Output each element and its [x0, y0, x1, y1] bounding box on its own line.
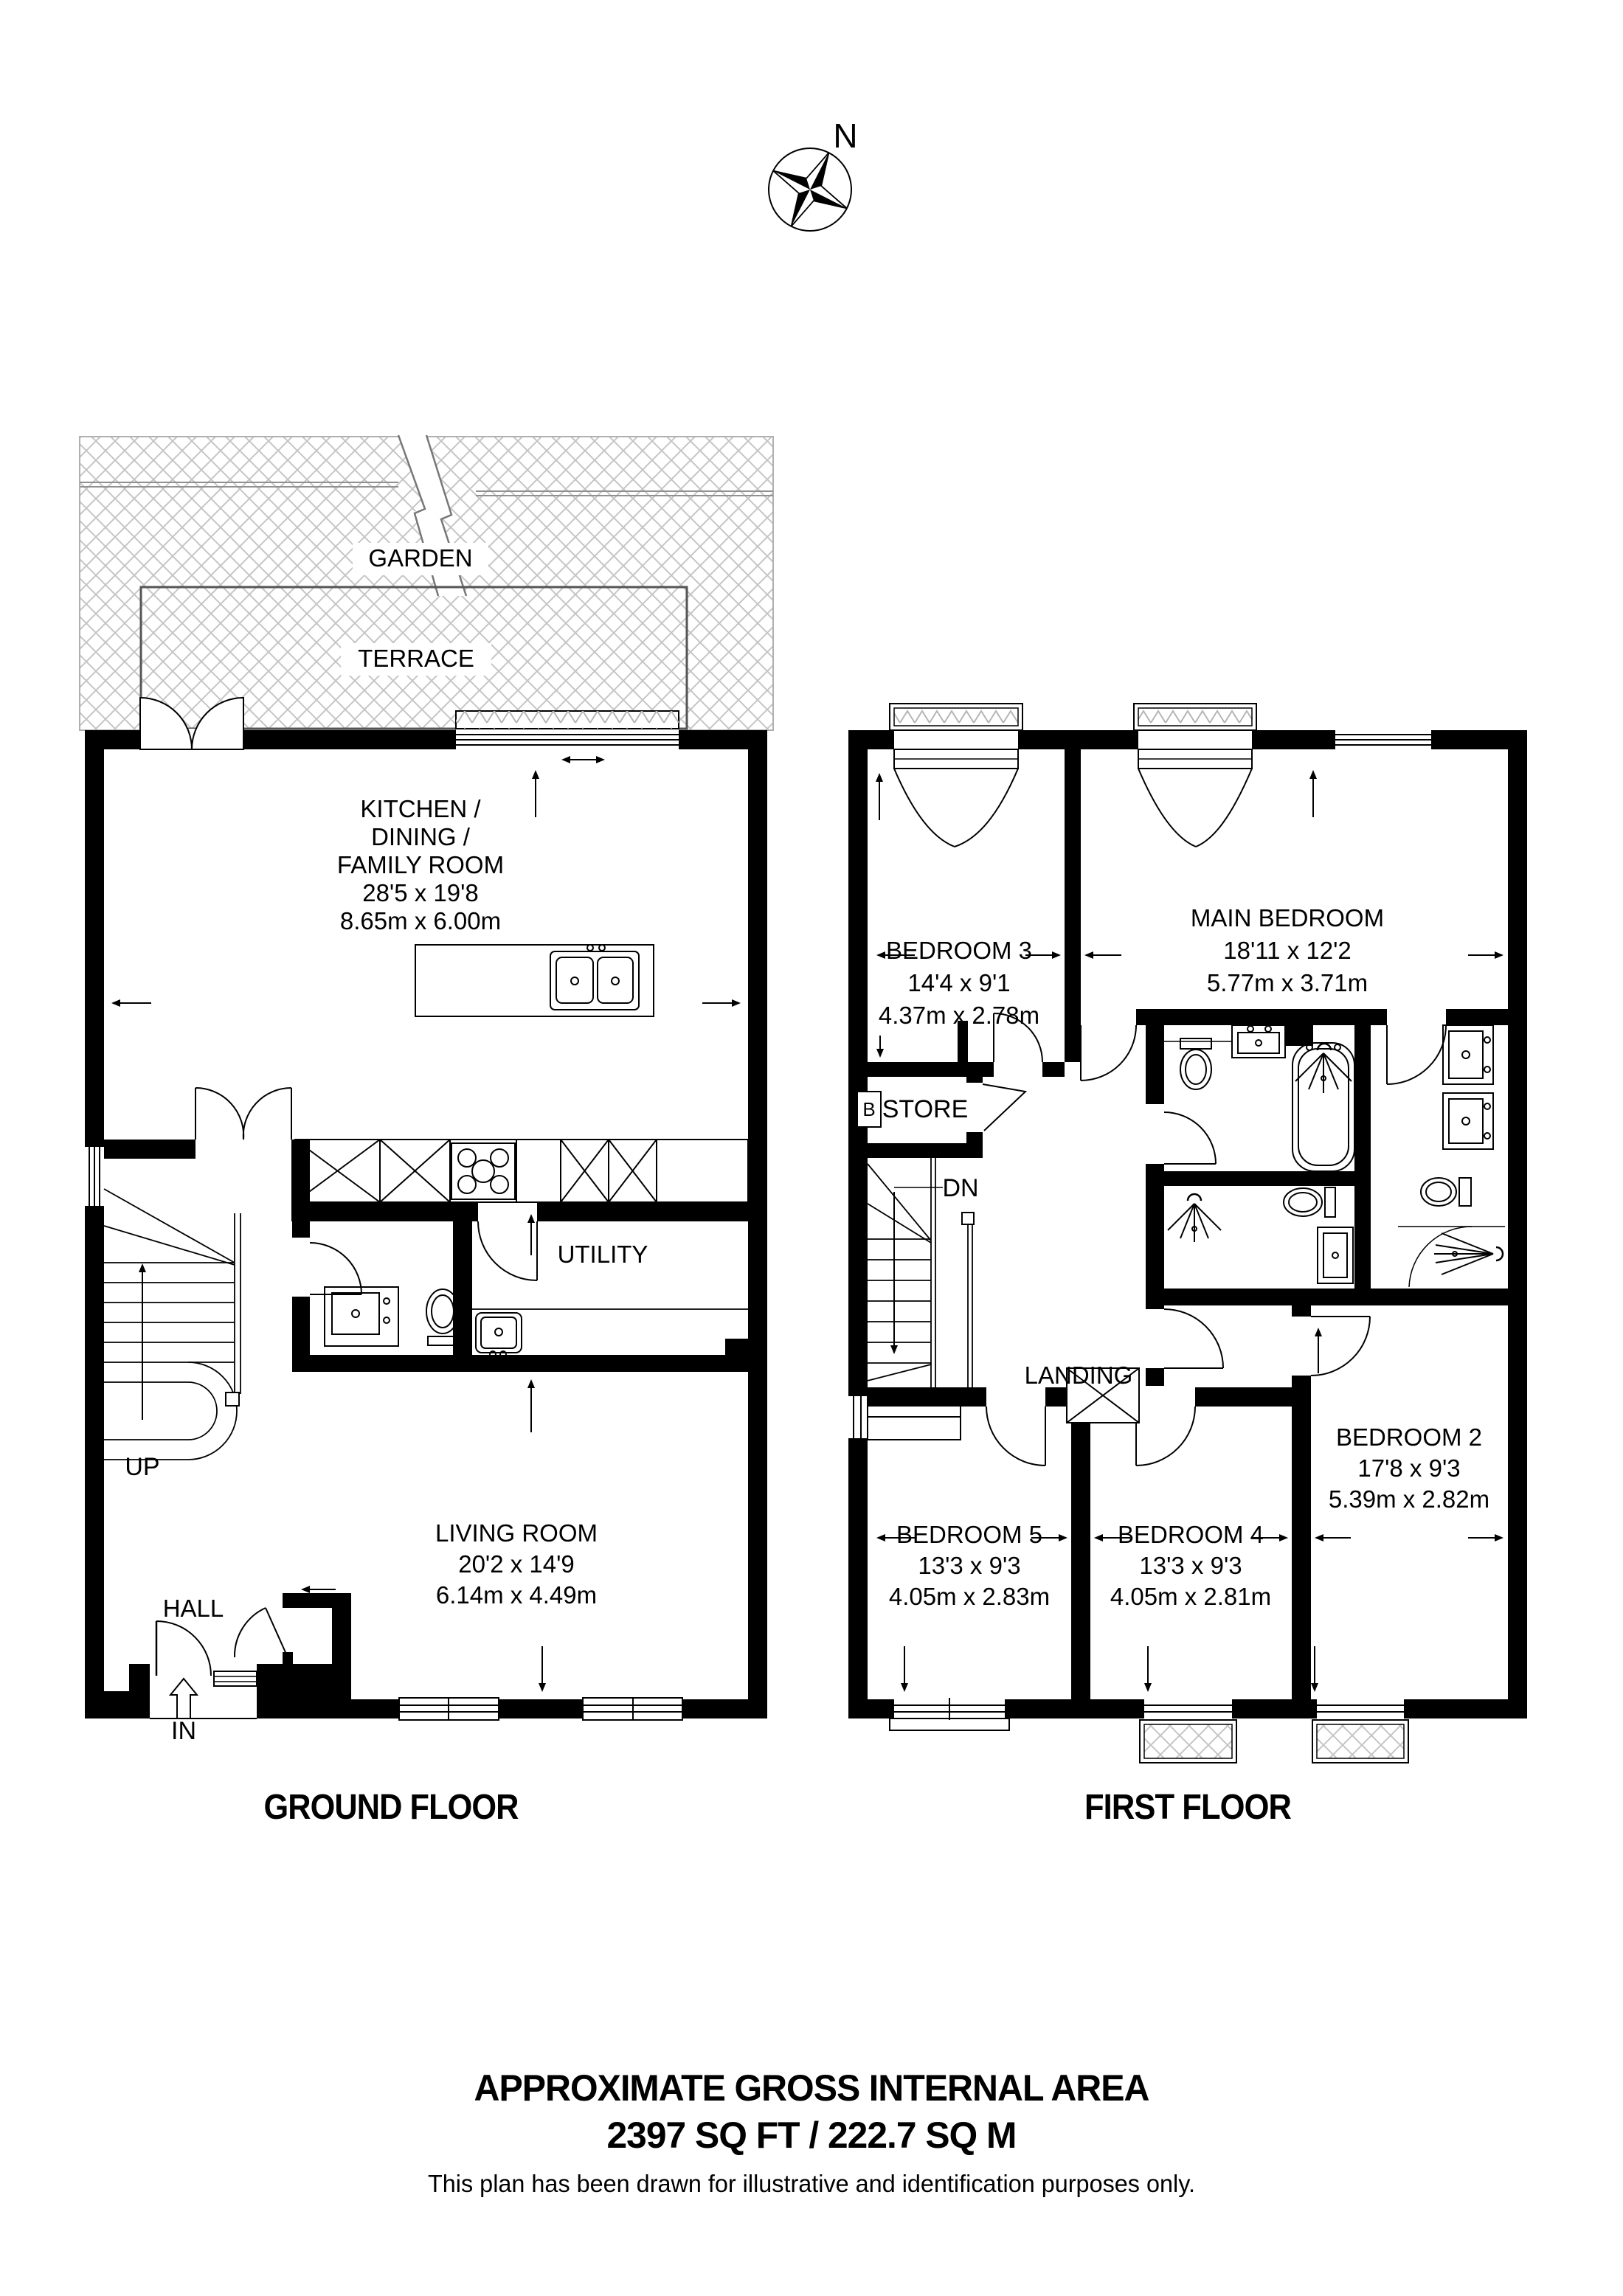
room-dimensions: 6.14m x 4.49m — [436, 1581, 597, 1609]
bedroom3-dormer-window — [890, 704, 1022, 847]
store-label: STORE — [882, 1095, 969, 1123]
kitchen-window — [456, 711, 679, 745]
ground-floor-plan: IN — [85, 698, 767, 1745]
room-dimensions: 4.37m x 2.78m — [879, 1002, 1039, 1029]
in-label: IN — [171, 1717, 196, 1745]
room-dimensions: 5.39m x 2.82m — [1329, 1485, 1489, 1513]
area-title: APPROXIMATE GROSS INTERNAL AREA — [474, 2067, 1149, 2109]
room-label: BEDROOM 3 — [886, 937, 1032, 964]
basin-icon — [1318, 1227, 1353, 1283]
room-label: LIVING ROOM — [435, 1519, 598, 1547]
kitchen-island — [415, 945, 654, 1016]
boiler-label: B — [862, 1098, 875, 1120]
room-dimensions: 20'2 x 14'9 — [458, 1550, 575, 1578]
dn-label: DN — [942, 1174, 978, 1202]
room-bedroom4: BEDROOM 4 13'3 x 9'3 4.05m x 2.81m — [1110, 1521, 1271, 1610]
vanity-basin-icon — [1443, 1025, 1493, 1084]
room-bedroom2: BEDROOM 2 17'8 x 9'3 5.39m x 2.82m — [1329, 1423, 1489, 1513]
room-dimensions: 5.77m x 3.71m — [1207, 969, 1368, 996]
room-dimensions: 13'3 x 9'3 — [1139, 1552, 1242, 1579]
room-hall-label: HALL — [163, 1595, 224, 1622]
room-dimensions: 14'4 x 9'1 — [907, 969, 1010, 996]
garden-area: GARDEN TERRACE — [80, 435, 773, 730]
room-bedroom3: BEDROOM 3 14'4 x 9'1 4.37m x 2.78m — [879, 937, 1039, 1029]
floorplan-page: N GARDEN TERRACE — [0, 0, 1623, 2296]
door-swing — [195, 1088, 291, 1140]
landing-label: LANDING — [1025, 1362, 1133, 1389]
room-dimensions: 28'5 x 19'8 — [362, 879, 479, 906]
room-label: MAIN BEDROOM — [1191, 904, 1384, 932]
room-dimensions: 8.65m x 6.00m — [340, 907, 501, 934]
boiler-icon: B — [857, 1092, 881, 1127]
room-label: FAMILY ROOM — [337, 851, 504, 878]
toilet-icon — [1421, 1178, 1471, 1206]
first-floor-plan: B STORE DN — [848, 704, 1527, 1763]
up-label: UP — [125, 1453, 159, 1481]
room-label: BEDROOM 4 — [1118, 1521, 1264, 1548]
room-dimensions: 4.05m x 2.83m — [889, 1583, 1050, 1610]
stairs-up — [104, 1189, 240, 1460]
ground-floor-title: GROUND FLOOR — [264, 1788, 519, 1827]
room-label: DINING / — [371, 823, 471, 850]
terrace-label: TERRACE — [358, 645, 474, 672]
room-kitchen: KITCHEN / DINING / FAMILY ROOM 28'5 x 19… — [337, 795, 504, 934]
door-swing — [478, 1221, 537, 1280]
disclaimer-text: This plan has been drawn for illustrativ… — [428, 2170, 1195, 2197]
utility-sink-icon — [472, 1309, 748, 1357]
bath-icon — [1292, 1043, 1354, 1171]
entrance-in-marker: IN — [170, 1679, 197, 1745]
kitchen-counter — [295, 1140, 748, 1202]
shower-icon — [1168, 1194, 1221, 1242]
compass-icon: N — [769, 117, 858, 231]
basin-icon — [1164, 1025, 1285, 1058]
room-bedroom5: BEDROOM 5 13'3 x 9'3 4.05m x 2.83m — [889, 1521, 1050, 1610]
main-bedroom-dormer-window — [1134, 704, 1256, 847]
first-floor-title: FIRST FLOOR — [1084, 1788, 1291, 1827]
room-label: KITCHEN / — [360, 795, 481, 822]
door-swing — [235, 1608, 288, 1657]
room-dimensions: 4.05m x 2.81m — [1110, 1583, 1271, 1610]
room-label: BEDROOM 2 — [1336, 1423, 1482, 1451]
basin-icon — [325, 1287, 398, 1346]
room-utility-label: UTILITY — [558, 1241, 648, 1268]
floorplan-drawing: N GARDEN TERRACE — [0, 0, 1623, 2296]
entrance-door — [150, 1621, 257, 1718]
area-value: 2397 SQ FT / 222.7 SQ M — [607, 2115, 1017, 2156]
ground-floor-walls — [85, 730, 767, 1718]
corner-shower-icon — [1398, 1227, 1505, 1287]
compass-north-label: N — [833, 117, 857, 155]
room-dimensions: 17'8 x 9'3 — [1357, 1454, 1460, 1482]
room-main-bedroom: MAIN BEDROOM 18'11 x 12'2 5.77m x 3.71m — [1191, 904, 1384, 996]
room-dimensions: 13'3 x 9'3 — [918, 1552, 1020, 1579]
room-dimensions: 18'11 x 12'2 — [1223, 937, 1351, 964]
vanity-basin-icon — [1443, 1093, 1493, 1149]
room-label: BEDROOM 5 — [896, 1521, 1042, 1548]
hob-icon — [451, 1143, 515, 1199]
toilet-icon — [1180, 1038, 1211, 1089]
garden-label: GARDEN — [368, 544, 472, 572]
room-living: LIVING ROOM 20'2 x 14'9 6.14m x 4.49m — [435, 1519, 598, 1609]
toilet-icon — [1284, 1187, 1335, 1217]
